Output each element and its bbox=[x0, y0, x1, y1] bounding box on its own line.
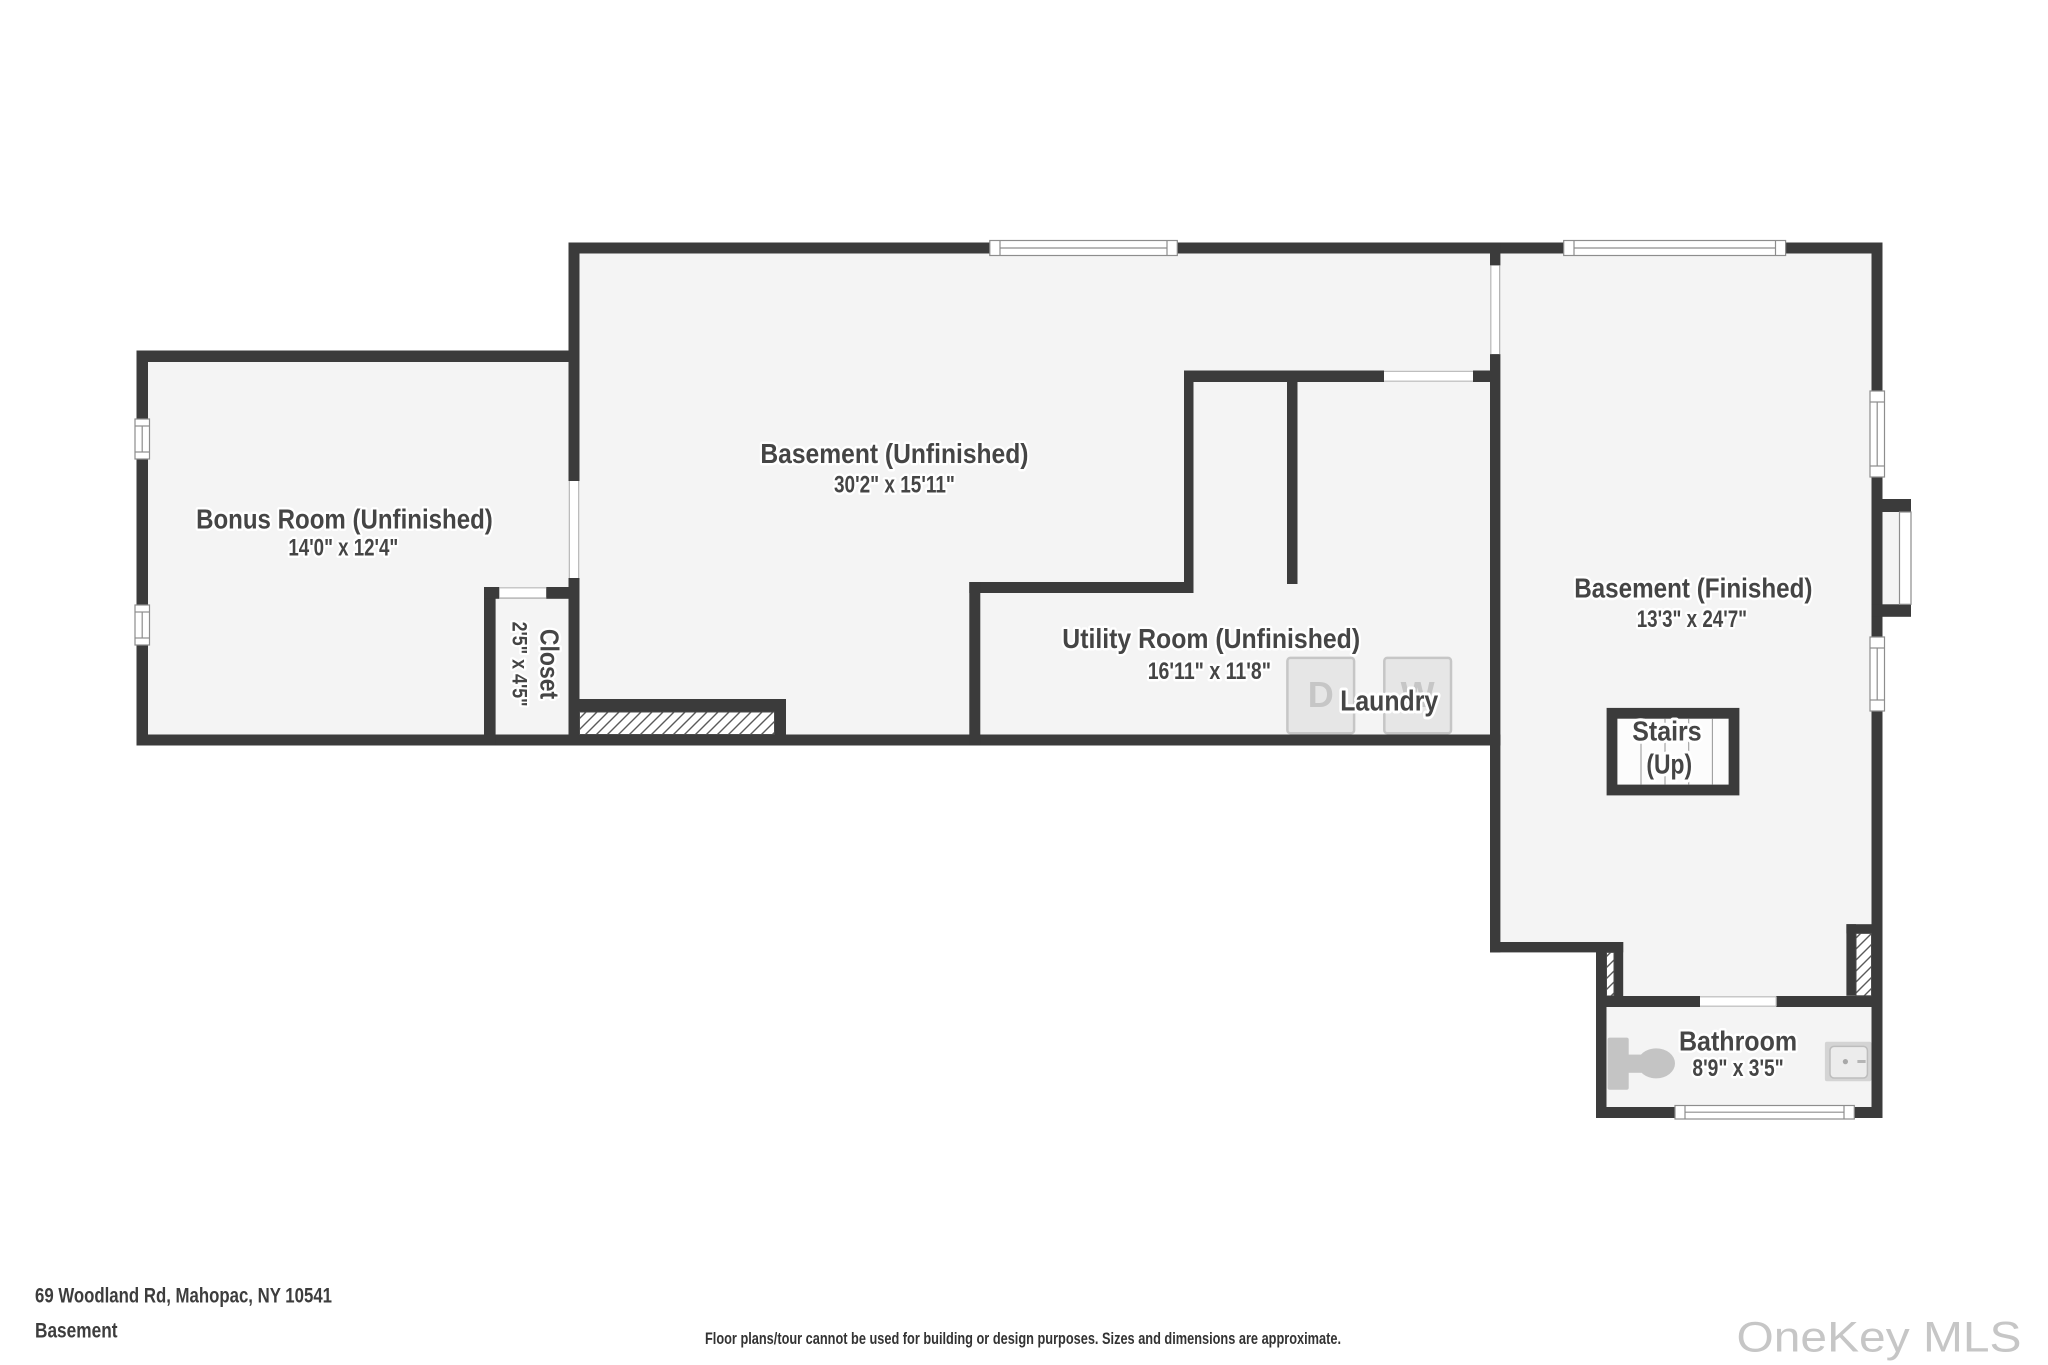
svg-text:Basement: Basement bbox=[35, 1320, 118, 1343]
svg-text:Bathroom: Bathroom bbox=[1679, 1026, 1797, 1057]
svg-text:69 Woodland Rd, Mahopac, NY 10: 69 Woodland Rd, Mahopac, NY 10541 bbox=[35, 1285, 332, 1308]
svg-text:Basement (Finished): Basement (Finished) bbox=[1574, 573, 1812, 604]
svg-text:D: D bbox=[1308, 674, 1334, 715]
svg-text:Bonus Room (Unfinished): Bonus Room (Unfinished) bbox=[196, 503, 493, 534]
svg-text:Floor plans/tour cannot be use: Floor plans/tour cannot be used for buil… bbox=[705, 1330, 1341, 1348]
svg-text:13'3" x 24'7": 13'3" x 24'7" bbox=[1637, 606, 1747, 633]
svg-text:(Up): (Up) bbox=[1646, 749, 1692, 780]
svg-text:Laundry: Laundry bbox=[1340, 686, 1438, 718]
svg-text:30'2" x 15'11": 30'2" x 15'11" bbox=[834, 471, 955, 498]
svg-text:14'0" x 12'4": 14'0" x 12'4" bbox=[288, 535, 398, 562]
svg-text:8'9" x 3'5": 8'9" x 3'5" bbox=[1692, 1055, 1783, 1082]
svg-text:16'11" x 11'8": 16'11" x 11'8" bbox=[1148, 658, 1271, 685]
svg-text:2'5" x 4'5": 2'5" x 4'5" bbox=[508, 622, 532, 707]
svg-text:OneKey MLS: OneKey MLS bbox=[1737, 1314, 2022, 1362]
svg-text:Utility Room (Unfinished): Utility Room (Unfinished) bbox=[1062, 623, 1360, 654]
svg-text:Stairs: Stairs bbox=[1632, 716, 1701, 747]
svg-text:Basement (Unfinished): Basement (Unfinished) bbox=[760, 438, 1028, 469]
svg-text:Closet: Closet bbox=[534, 629, 564, 700]
